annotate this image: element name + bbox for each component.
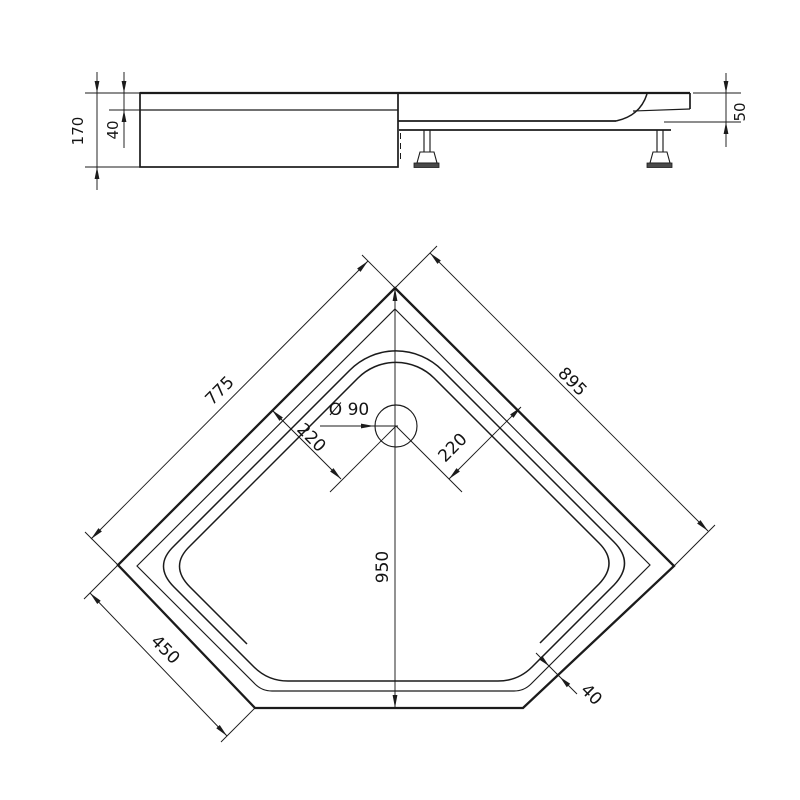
dim-label-drain-offset-right: 220 — [434, 429, 471, 466]
side-tray-ledge — [633, 109, 690, 111]
right-foot-plate — [647, 163, 672, 168]
dim-right-edge: 895 — [395, 246, 715, 566]
dim-label-drain-diameter: Ø 90 — [329, 400, 369, 420]
dim-drain-diameter: Ø 90 — [320, 400, 396, 428]
left-foot — [417, 152, 437, 163]
dim-drain-offset-right: 220 — [396, 407, 521, 492]
dim-label-rim-width: 40 — [576, 680, 605, 709]
side-right-leg — [647, 130, 672, 168]
dim-label-drain-offset-left: 220 — [292, 419, 329, 456]
dim-drain-offset-left: 220 — [272, 410, 396, 492]
dim-label-rim-height: 40 — [104, 120, 122, 139]
dim-label-depth: 950 — [373, 551, 393, 583]
dim-label-left-edge: 775 — [201, 372, 238, 409]
right-foot — [650, 152, 670, 163]
side-view: 170 40 50 — [69, 72, 749, 190]
plan-basin-outer — [164, 351, 625, 681]
dim-rim-height: 40 — [104, 72, 141, 148]
plan-view: 950 775 895 450 Ø 90 — [84, 246, 715, 742]
dim-label-right-edge: 895 — [553, 363, 590, 400]
side-front-panel — [140, 93, 398, 167]
drawing-canvas: 170 40 50 — [0, 0, 800, 800]
dim-front-left-edge: 450 — [84, 565, 255, 742]
dim-label-total-height: 170 — [69, 117, 87, 146]
side-tray-end-curve — [616, 94, 647, 121]
side-left-leg — [414, 130, 439, 168]
technical-drawing-page: 170 40 50 — [0, 0, 800, 800]
dim-label-right-end-height: 50 — [731, 102, 749, 121]
left-foot-plate — [414, 163, 439, 168]
dim-label-front-left-edge: 450 — [146, 631, 183, 668]
